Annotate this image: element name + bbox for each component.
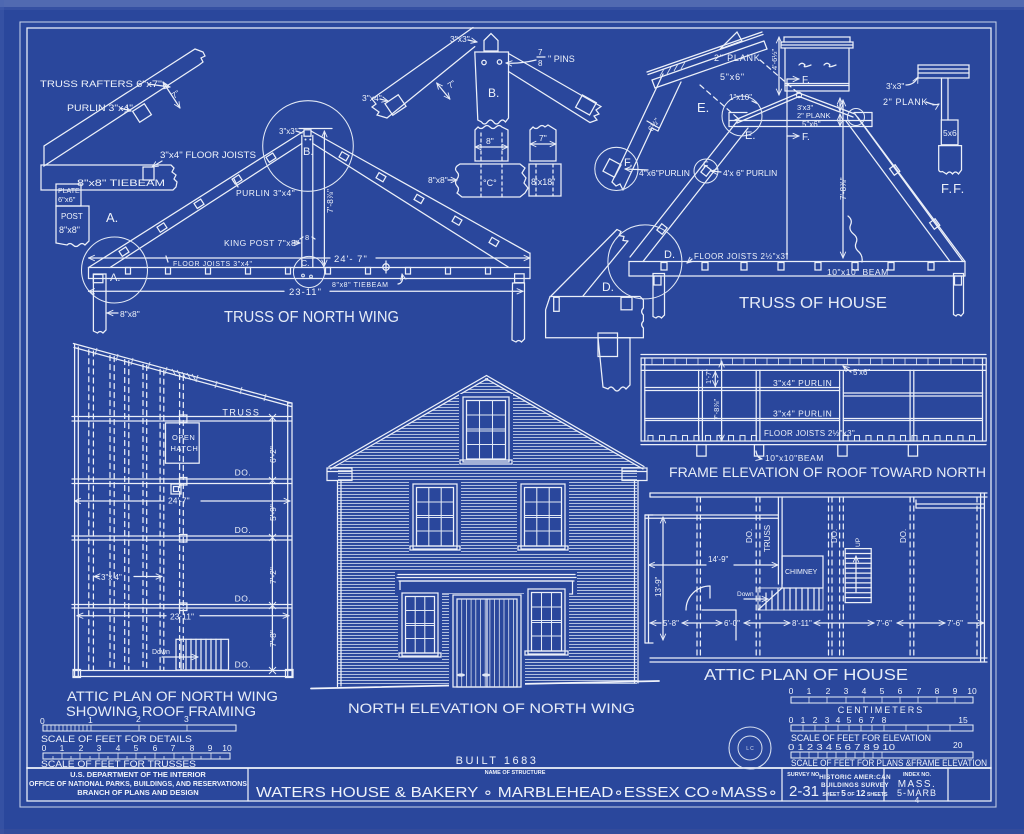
svg-text:8: 8	[882, 715, 887, 725]
svg-text:13'-9": 13'-9"	[654, 576, 663, 597]
svg-text:8'-11": 8'-11"	[792, 619, 812, 628]
svg-text:3"x4" FLOOR JOISTS: 3"x4" FLOOR JOISTS	[160, 150, 256, 161]
svg-text:INDEX NO.: INDEX NO.	[903, 772, 932, 778]
svg-text:8'x18": 8'x18"	[531, 177, 555, 187]
svg-text:FRAME ELEVATION OF ROOF TOWARD: FRAME ELEVATION OF ROOF TOWARD NORTH	[669, 464, 986, 480]
svg-text:8"x8" TIEBEAM: 8"x8" TIEBEAM	[77, 178, 165, 189]
svg-text:ATTIC PLAN OF NORTH WING: ATTIC PLAN OF NORTH WING	[67, 688, 278, 704]
svg-text:7": 7"	[539, 133, 547, 143]
svg-text:DO.: DO.	[235, 525, 252, 535]
svg-text:2-31: 2-31	[789, 783, 819, 800]
svg-text:3'x3": 3'x3"	[886, 81, 904, 91]
svg-text:10: 10	[967, 686, 977, 696]
svg-text:A.: A.	[110, 272, 120, 284]
svg-text:24'- 7": 24'- 7"	[334, 254, 368, 265]
svg-text:4'-6½": 4'-6½"	[770, 48, 779, 70]
svg-text:PURLIN 3"x4": PURLIN 3"x4"	[236, 188, 295, 198]
svg-text:0: 0	[42, 743, 47, 753]
svg-text:7'-6": 7'-6"	[876, 619, 892, 628]
svg-text:C.: C.	[301, 258, 310, 268]
svg-text:7: 7	[870, 715, 875, 725]
svg-text:DO.: DO.	[235, 594, 252, 604]
svg-text:1: 1	[60, 743, 65, 753]
svg-text:0 1 2 3 4 5 6 7 8 9 10: 0 1 2 3 4 5 6 7 8 9 10	[788, 742, 895, 752]
svg-text:UP: UP	[855, 538, 862, 547]
svg-text:1"x10": 1"x10"	[729, 93, 752, 102]
svg-text:BRANCH OF PLANS AND DESIGN: BRANCH OF PLANS AND DESIGN	[77, 788, 198, 797]
svg-text:5'x6": 5'x6"	[853, 368, 870, 377]
svg-text:10"x10" BEAM: 10"x10" BEAM	[827, 267, 889, 277]
svg-text:3: 3	[825, 715, 830, 725]
svg-text:WATERS HOUSE & BAKERY ∘ MARBLE: WATERS HOUSE & BAKERY ∘ MARBLEHEAD∘ESSEX…	[256, 785, 778, 801]
svg-text:10: 10	[222, 743, 232, 753]
svg-text:F.: F.	[624, 157, 633, 169]
svg-text:2" PLANK: 2" PLANK	[883, 97, 928, 107]
svg-text:E.: E.	[745, 130, 755, 142]
svg-text:A.: A.	[106, 210, 118, 225]
svg-text:FLOOR JOISTS 2½"x3": FLOOR JOISTS 2½"x3"	[694, 252, 789, 261]
svg-text:SURVEY NO.: SURVEY NO.	[787, 772, 821, 778]
svg-text:4: 4	[116, 743, 121, 753]
svg-text:SCALE OF FEET FOR PLANS &FRAME: SCALE OF FEET FOR PLANS &FRAME ELEVATION	[791, 758, 987, 769]
svg-text:3"x4" PURLIN: 3"x4" PURLIN	[773, 378, 832, 388]
svg-text:8: 8	[935, 686, 940, 696]
svg-text:9: 9	[953, 686, 958, 696]
svg-text:3"x3": 3"x3"	[279, 127, 298, 136]
svg-text:DO.: DO.	[235, 467, 252, 477]
svg-text:3"x3": 3"x3"	[450, 34, 470, 44]
svg-text:F.F.: F.F.	[941, 181, 965, 196]
svg-text:E.: E.	[697, 100, 709, 115]
svg-text:6: 6	[859, 715, 864, 725]
svg-text:8"x8": 8"x8"	[428, 175, 448, 185]
svg-text:8"x8" TIEBEAM: 8"x8" TIEBEAM	[332, 282, 389, 289]
svg-text:3"x4": 3"x4"	[362, 93, 382, 103]
svg-text:B.: B.	[488, 86, 499, 100]
svg-text:5"x6": 5"x6"	[802, 120, 821, 129]
svg-text:6: 6	[153, 743, 158, 753]
svg-text:4: 4	[836, 715, 841, 725]
svg-text:3"x4" PURLIN: 3"x4" PURLIN	[773, 409, 832, 419]
svg-text:TRUSS OF NORTH WING: TRUSS OF NORTH WING	[224, 309, 399, 326]
svg-text:15: 15	[958, 715, 968, 725]
svg-text:7'-8⅞": 7'-8⅞"	[712, 398, 721, 420]
svg-text:ATTIC PLAN OF HOUSE: ATTIC PLAN OF HOUSE	[704, 667, 908, 684]
svg-text:B.: B.	[303, 146, 313, 158]
svg-text:6"x6": 6"x6"	[58, 195, 76, 204]
svg-text:5: 5	[880, 686, 885, 696]
svg-text:6: 6	[898, 686, 903, 696]
svg-text:3: 3	[844, 686, 849, 696]
svg-text:24'-7": 24'-7"	[168, 496, 190, 506]
svg-text:KING POST 7"x8": KING POST 7"x8"	[224, 238, 300, 248]
svg-text:2: 2	[79, 743, 84, 753]
svg-text:CHIMNEY: CHIMNEY	[785, 569, 818, 576]
svg-text:5"x6": 5"x6"	[720, 72, 745, 82]
svg-text:OPEN: OPEN	[172, 433, 195, 442]
svg-text:8: 8	[538, 59, 543, 68]
svg-text:5: 5	[134, 743, 139, 753]
svg-text:5'-9": 5'-9"	[268, 504, 278, 521]
svg-text:5: 5	[847, 715, 852, 725]
svg-text:Down: Down	[737, 591, 754, 598]
svg-text:OFFICE OF NATIONAL PARKS, BUIL: OFFICE OF NATIONAL PARKS, BUILDINGS, AND…	[29, 781, 247, 788]
svg-text:5x6: 5x6	[943, 128, 957, 138]
svg-text:PLATE: PLATE	[58, 188, 80, 195]
svg-text:BUILT 1683: BUILT 1683	[456, 755, 539, 767]
svg-text:D.: D.	[602, 280, 614, 294]
svg-text:1: 1	[807, 686, 812, 696]
svg-text:SHOWING ROOF FRAMING: SHOWING ROOF FRAMING	[66, 703, 256, 719]
svg-text:°C°: °C°	[483, 178, 497, 188]
svg-text:8"x8": 8"x8"	[59, 225, 80, 235]
svg-text:4: 4	[915, 796, 920, 805]
svg-text:DO.: DO.	[745, 529, 754, 543]
svg-text:2: 2	[826, 686, 831, 696]
svg-text:23-11": 23-11"	[289, 287, 322, 298]
svg-text:F.: F.	[802, 75, 810, 86]
svg-text:FLOOR JOISTS 3"x4": FLOOR JOISTS 3"x4"	[173, 261, 253, 268]
svg-text:TRUSS OF HOUSE: TRUSS OF HOUSE	[739, 295, 887, 312]
svg-text:6'-0": 6'-0"	[724, 619, 740, 628]
svg-text:7: 7	[171, 743, 176, 753]
svg-text:" PINS: " PINS	[548, 54, 575, 64]
svg-text:SCALE OF FEET FOR TRUSSES: SCALE OF FEET FOR TRUSSES	[41, 759, 196, 770]
svg-text:U.S. DEPARTMENT OF THE INTERIO: U.S. DEPARTMENT OF THE INTERIOR	[70, 770, 206, 779]
svg-text:4: 4	[862, 686, 867, 696]
svg-text:0: 0	[789, 686, 794, 696]
svg-text:9: 9	[208, 743, 213, 753]
svg-text:8: 8	[190, 743, 195, 753]
svg-text:1: 1	[801, 715, 806, 725]
svg-text:CENTIMETERS: CENTIMETERS	[838, 705, 925, 715]
svg-text:NAME OF STRUCTURE: NAME OF STRUCTURE	[485, 770, 546, 776]
svg-text:2" PLANK: 2" PLANK	[797, 111, 831, 120]
svg-text:Down: Down	[152, 649, 170, 656]
svg-text:5'-8": 5'-8"	[663, 619, 679, 628]
svg-text:HISTORIC AMER:CAN: HISTORIC AMER:CAN	[819, 774, 891, 781]
svg-text:D.: D.	[664, 249, 675, 261]
svg-text:L C: L C	[746, 746, 754, 752]
svg-text:FLOOR JOISTS 2½"x3": FLOOR JOISTS 2½"x3"	[764, 429, 855, 438]
svg-text:TRUSS: TRUSS	[763, 525, 772, 552]
svg-text:2: 2	[813, 715, 818, 725]
svg-text:7'-8⅞": 7'-8⅞"	[325, 189, 335, 213]
svg-text:4'x 6" PURLIN: 4'x 6" PURLIN	[723, 168, 777, 178]
svg-text:NORTH ELEVATION OF NORTH WING: NORTH ELEVATION OF NORTH WING	[348, 700, 635, 716]
svg-text:23‧11": 23‧11"	[170, 612, 194, 622]
svg-text:8"x8": 8"x8"	[120, 309, 140, 319]
svg-text:3"x 4": 3"x 4"	[101, 573, 122, 582]
svg-text:2" PLANK: 2" PLANK	[714, 53, 761, 63]
svg-text:DO.: DO.	[899, 529, 908, 543]
svg-text:8": 8"	[486, 136, 494, 146]
svg-text:7'-8": 7'-8"	[268, 630, 278, 647]
svg-text:1'-7": 1'-7"	[704, 369, 713, 384]
svg-text:7: 7	[538, 48, 543, 57]
svg-text:10"x10"BEAM: 10"x10"BEAM	[765, 453, 824, 463]
svg-text:20: 20	[953, 740, 963, 750]
svg-text:14'-9": 14'-9"	[708, 555, 729, 564]
svg-text:7'-6": 7'-6"	[947, 619, 963, 628]
svg-text:6'-2": 6'-2"	[268, 446, 278, 463]
svg-text:DO.: DO.	[830, 529, 839, 543]
svg-text:0: 0	[789, 715, 794, 725]
svg-text:7'-8⅞": 7'-8⅞"	[839, 177, 848, 200]
svg-text:8: 8	[305, 233, 309, 242]
svg-text:7'-2": 7'-2"	[268, 567, 278, 584]
svg-text:TRUSS: TRUSS	[222, 408, 260, 418]
svg-text:7: 7	[917, 686, 922, 696]
svg-text:F: F	[703, 160, 709, 170]
svg-text:HATCH: HATCH	[171, 444, 199, 453]
svg-text:3: 3	[97, 743, 102, 753]
svg-text:F.: F.	[802, 132, 810, 143]
svg-text:POST: POST	[61, 212, 83, 221]
svg-text:TRUSS RAFTERS 6"x7": TRUSS RAFTERS 6"x7"	[40, 79, 162, 90]
svg-text:DO.: DO.	[235, 659, 252, 669]
